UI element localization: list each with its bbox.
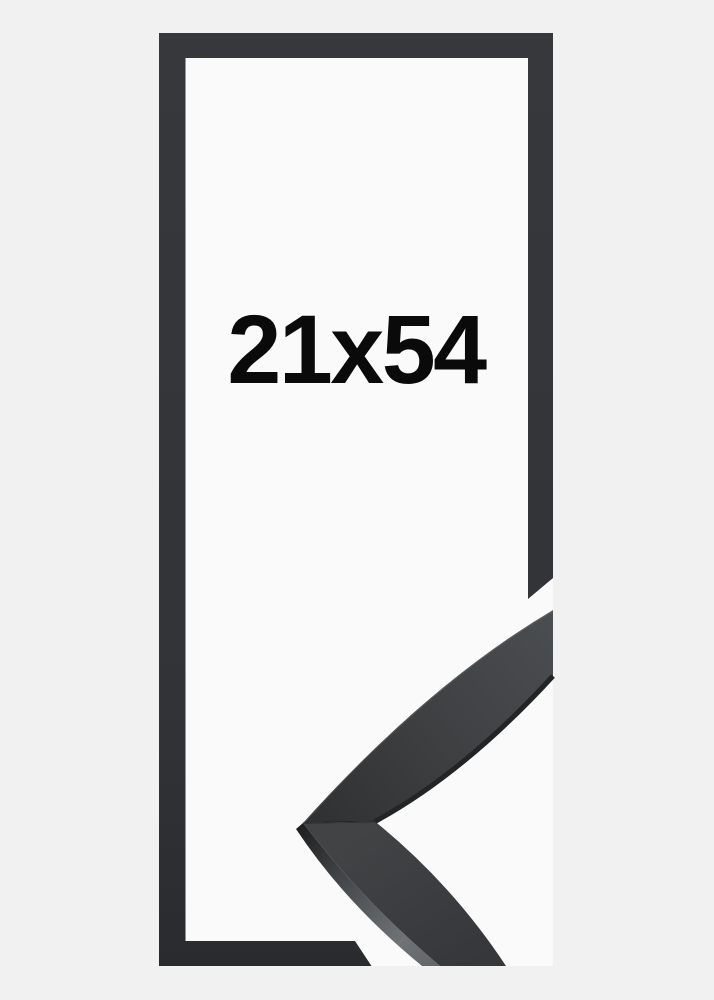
frame-left-bar: [159, 33, 186, 966]
frame-illustration: [0, 0, 714, 1000]
product-image: 21x54: [0, 0, 714, 1000]
frame-top-bar: [159, 33, 553, 58]
frame-bottom-bar: [159, 941, 372, 966]
frame-size-label: 21x54: [159, 301, 553, 398]
